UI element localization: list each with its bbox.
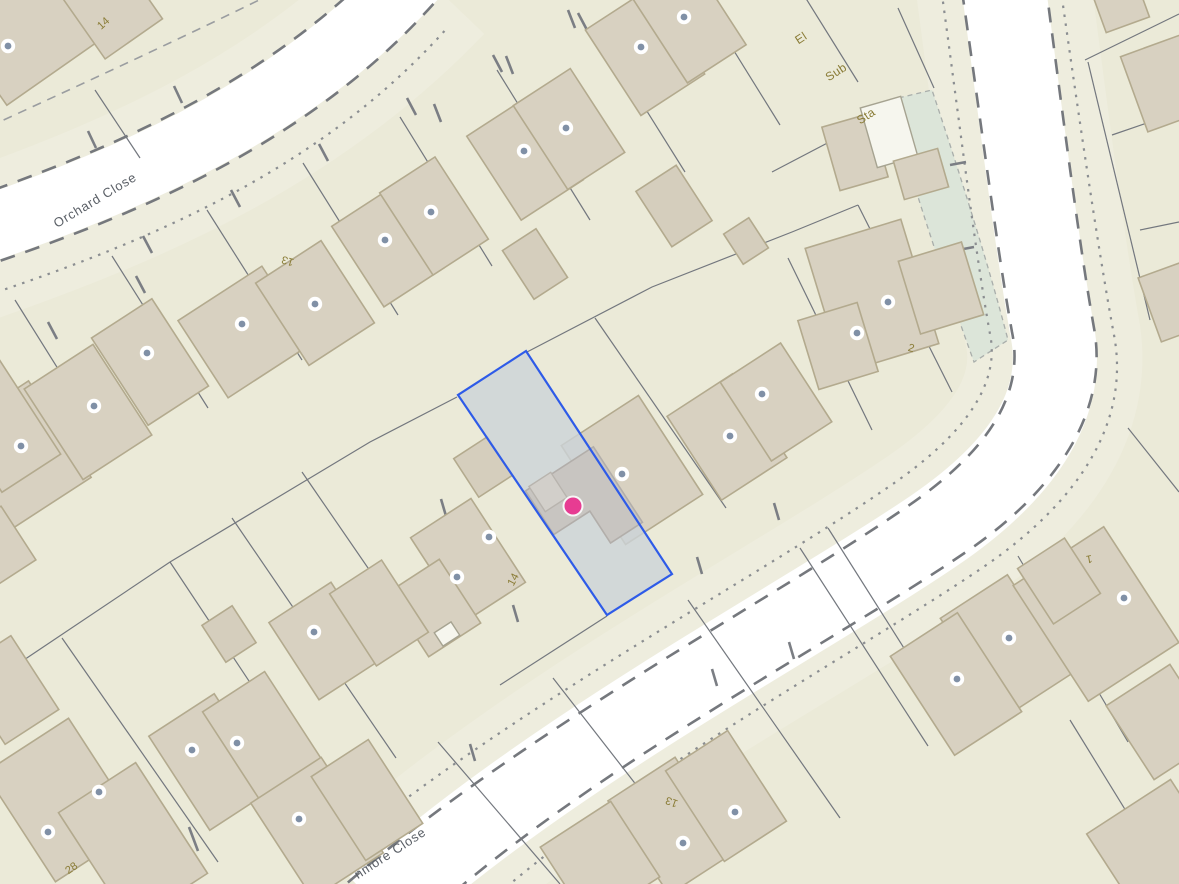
address-marker-icon bbox=[638, 44, 645, 51]
address-marker-icon bbox=[486, 534, 493, 541]
address-marker-icon bbox=[96, 789, 103, 796]
address-marker-icon bbox=[680, 840, 687, 847]
address-marker-icon bbox=[732, 809, 739, 816]
address-marker-icon bbox=[144, 350, 151, 357]
address-marker-icon bbox=[454, 574, 461, 581]
map-canvas[interactable] bbox=[0, 0, 1179, 884]
address-marker-icon bbox=[681, 14, 688, 21]
address-marker-icon bbox=[234, 740, 241, 747]
address-marker-icon bbox=[5, 43, 12, 50]
address-marker-icon bbox=[91, 403, 98, 410]
address-marker-icon bbox=[954, 676, 961, 683]
address-marker-icon bbox=[759, 391, 766, 398]
address-marker-icon bbox=[382, 237, 389, 244]
property-location-marker[interactable] bbox=[563, 496, 584, 517]
address-marker-icon bbox=[563, 125, 570, 132]
address-marker-icon bbox=[45, 829, 52, 836]
address-marker-icon bbox=[521, 148, 528, 155]
location-pin-icon[interactable] bbox=[565, 498, 582, 515]
address-marker-icon bbox=[727, 433, 734, 440]
address-marker-icon bbox=[428, 209, 435, 216]
address-marker-icon bbox=[885, 299, 892, 306]
address-marker-icon bbox=[312, 301, 319, 308]
address-marker-icon bbox=[311, 629, 318, 636]
address-marker-icon bbox=[296, 816, 303, 823]
address-marker-icon bbox=[18, 443, 25, 450]
address-marker-icon bbox=[1121, 595, 1128, 602]
address-marker-icon bbox=[189, 747, 196, 754]
address-marker-icon bbox=[239, 321, 246, 328]
address-marker-icon bbox=[1006, 635, 1013, 642]
address-marker-icon bbox=[619, 471, 626, 478]
address-marker-icon bbox=[854, 330, 861, 337]
map-viewport[interactable]: Orchard Closenmore CloseElSubSta14132141… bbox=[0, 0, 1179, 884]
